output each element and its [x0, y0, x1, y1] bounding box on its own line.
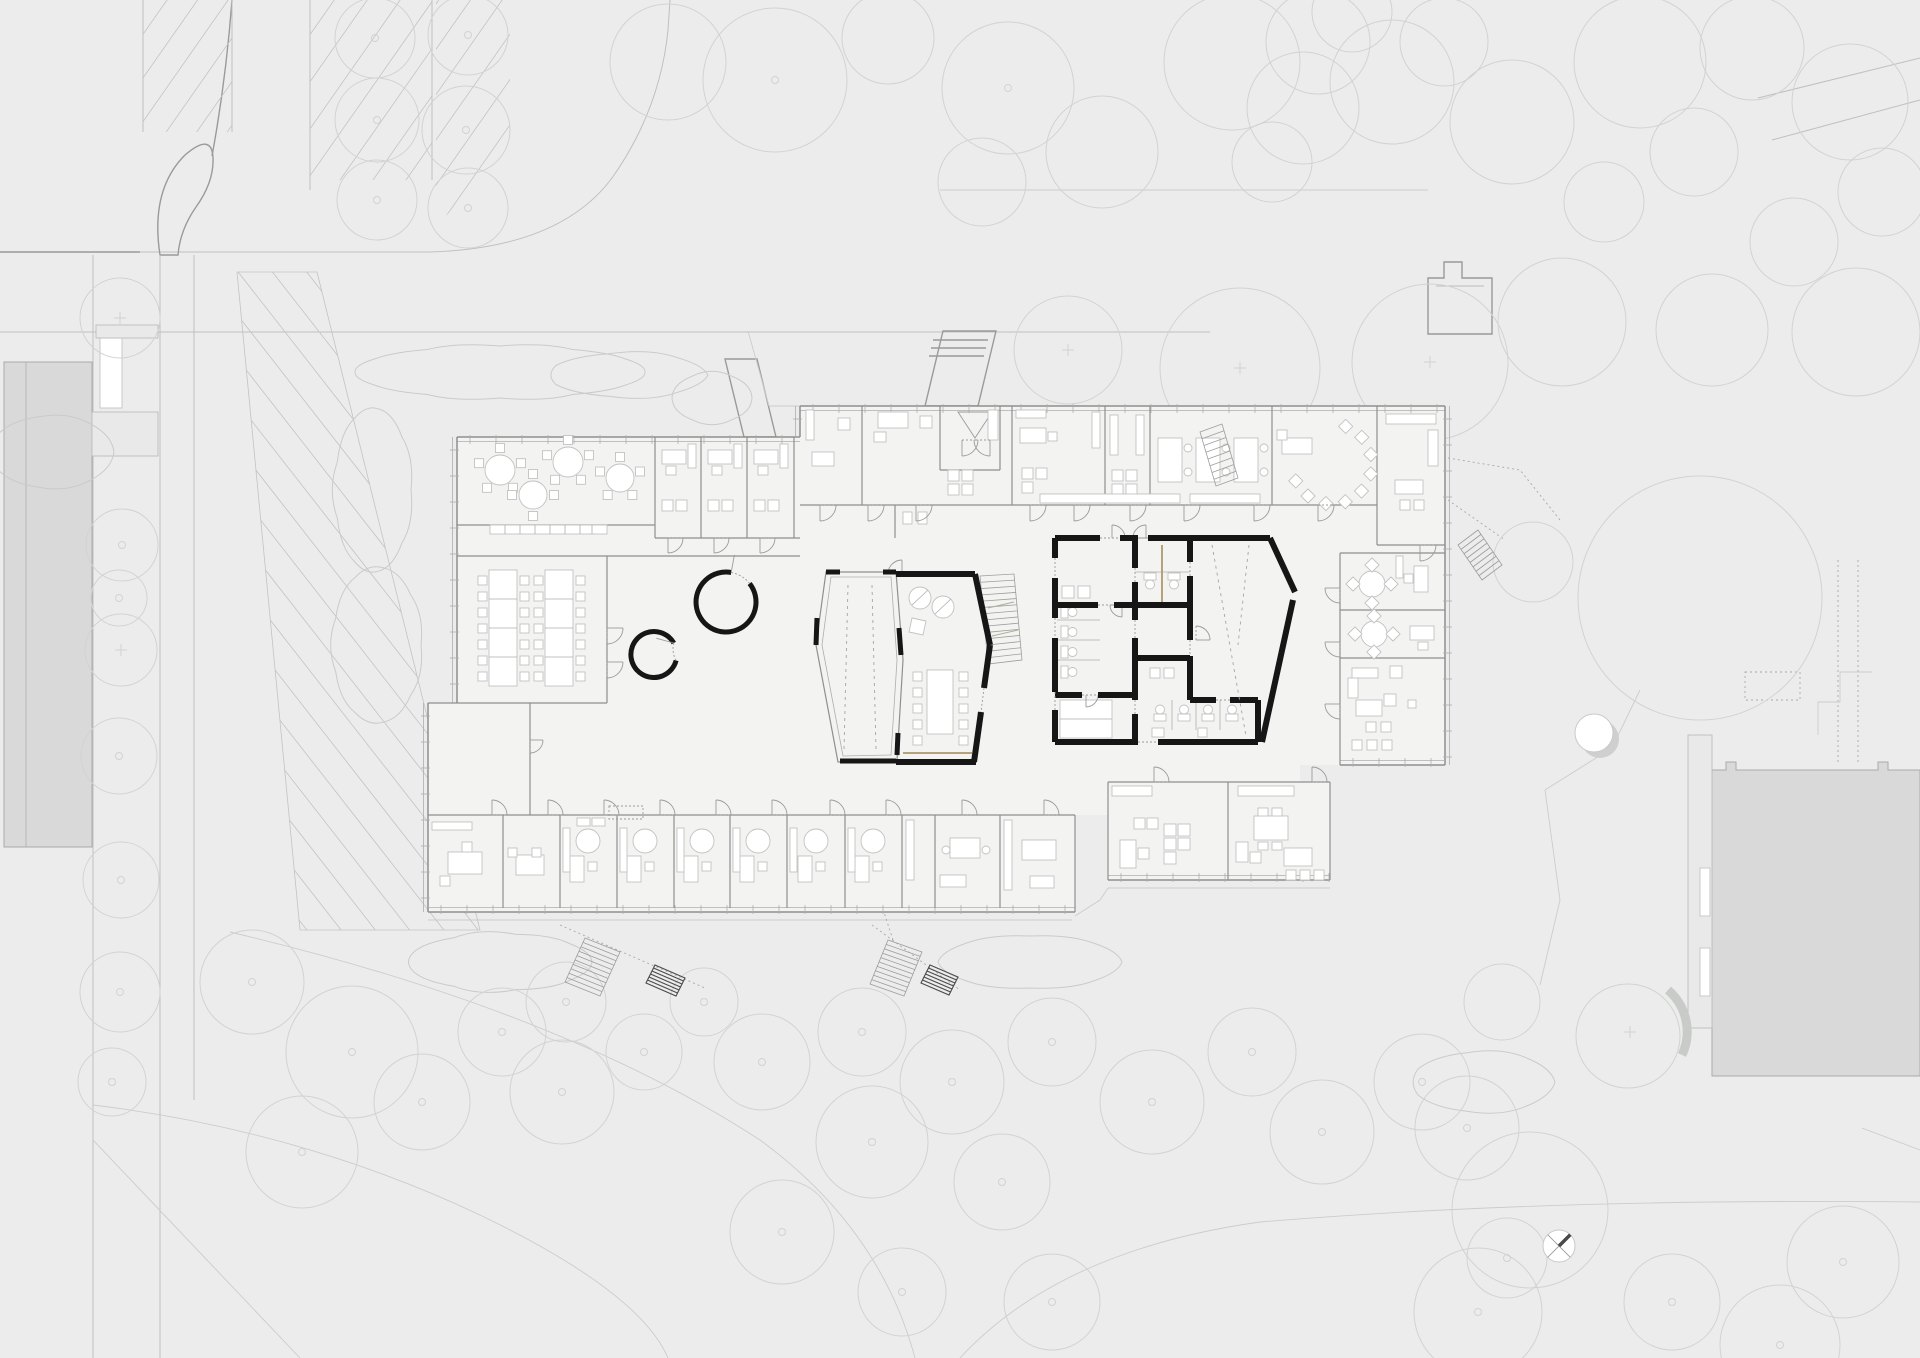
- architectural-floor-plan-drawing: [0, 0, 1920, 1358]
- site-plan-page: [0, 0, 1920, 1358]
